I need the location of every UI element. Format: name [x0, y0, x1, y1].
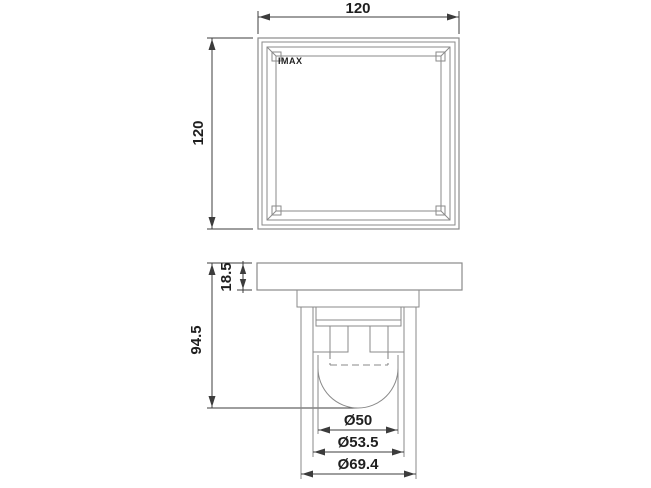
dim-inner-diameter: Ø50 [318, 412, 398, 434]
dim-label-flange-height: 18.5 [218, 262, 235, 291]
dim-top-width: 120 [258, 0, 459, 34]
dim-label-middle-diameter: Ø53.5 [338, 434, 379, 451]
trap-channel-right [370, 326, 388, 352]
dim-flange-height: 18.5 [218, 261, 246, 293]
floor-drain-drawing: 120 120 [0, 0, 651, 488]
technical-drawing-page: 120 120 [0, 0, 651, 488]
dim-label-left-height: 120 [190, 120, 207, 145]
trap-channel-left [330, 326, 348, 352]
top-plate [257, 263, 462, 290]
corner-details [267, 47, 450, 220]
flange-collar [297, 290, 419, 307]
dim-label-top-width: 120 [345, 0, 370, 17]
dim-outer-diameter: Ø69.4 [301, 456, 416, 478]
top-view: 120 120 [190, 0, 459, 229]
dim-label-inner-diameter: Ø50 [344, 412, 372, 429]
grate-top-view: IMAX [258, 38, 459, 229]
dim-overall-height: 94.5 [188, 263, 216, 408]
dim-label-overall-height: 94.5 [188, 325, 205, 354]
side-view: 94.5 18.5 [188, 261, 462, 479]
insert-top-bar [316, 320, 401, 326]
dim-middle-diameter: Ø53.5 [313, 434, 404, 456]
trap-bowl [318, 368, 398, 408]
brand-logo-text: IMAX [278, 56, 303, 66]
dim-label-outer-diameter: Ø69.4 [338, 456, 380, 473]
dim-left-height: 120 [190, 38, 253, 229]
